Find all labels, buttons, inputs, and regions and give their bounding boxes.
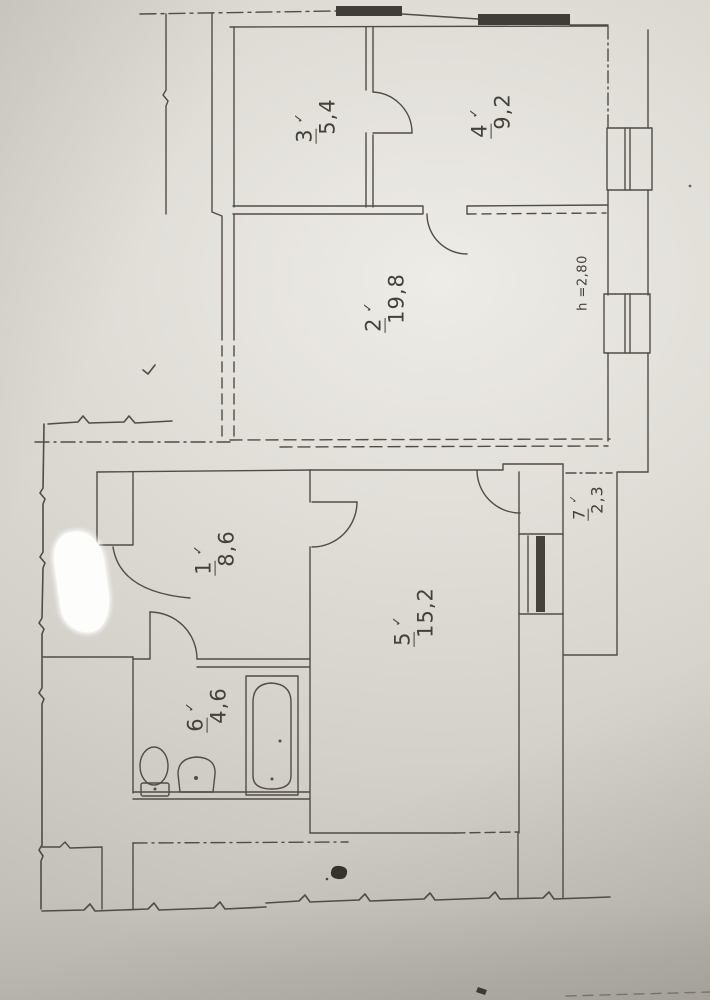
ink-blot [331, 866, 347, 879]
boundary-dashed-mid-1 [230, 439, 610, 440]
projection-bottom-left [42, 842, 102, 909]
speck-right [689, 185, 692, 188]
window-room2-mullion [625, 294, 630, 353]
wall-top-thick-bar-1 [336, 6, 402, 16]
bathtub-drain-2 [271, 778, 274, 781]
room-6-checkmark: ✓ [184, 702, 196, 712]
room-1-number-row: 1 ✓ [194, 530, 216, 575]
window-room5-room7-mullion [536, 536, 545, 612]
bathtub-inner [253, 683, 291, 789]
room-3-number-row: 3 ✓ [295, 98, 317, 143]
room-3-label: 3 ✓ 5,4 [295, 98, 340, 143]
tick-mark-left [143, 365, 155, 374]
room-5-number: 5 [393, 632, 415, 647]
room-6-number: 6 [186, 717, 208, 732]
door-room4-arc [373, 92, 412, 133]
ink-blot-dot [326, 878, 329, 881]
ink-dash-bottom [476, 987, 487, 995]
sink-drain [194, 776, 198, 780]
room-1-area: 8,6 [217, 530, 238, 575]
floorplan-photo: 1 ✓ 8,6 2 ✓ 19,8 3 ✓ 5,4 4 ✓ 9,2 5 ✓ 15,… [0, 0, 710, 1000]
wall-room34-divider-lower [366, 133, 373, 207]
room-1-checkmark: ✓ [192, 545, 204, 555]
room-2-label: 2 ✓ 19,8 [364, 273, 409, 333]
wall-top-dashdot [140, 11, 336, 14]
bathtub-drain-1 [279, 740, 282, 743]
room-7-checkmark: ✓ [570, 495, 580, 503]
wall-bottom-zigzag-left [42, 902, 266, 911]
window-room4-mullion [625, 128, 630, 190]
room-6-label: 6 ✓ 4,6 [186, 687, 231, 732]
room-6-number-row: 6 ✓ [186, 687, 208, 732]
interior-walls [97, 26, 608, 833]
room-1-number: 1 [194, 560, 216, 575]
duct-shaft [97, 472, 133, 545]
sink [178, 757, 215, 792]
room-7-number: 7 [572, 509, 589, 521]
wall-hall-room2-left [233, 206, 423, 214]
window-room2 [604, 294, 650, 353]
room-3-checkmark: ✓ [293, 113, 305, 123]
room-5-label: 5 ✓ 15,2 [393, 587, 438, 647]
room-4-label: 4 ✓ 9,2 [470, 93, 515, 138]
door-entry-arc [113, 547, 190, 598]
room-7-area: 2,3 [590, 485, 606, 520]
room-5-area: 15,2 [416, 587, 437, 647]
room-4-checkmark: ✓ [468, 108, 480, 118]
wall-room6-top [133, 659, 310, 667]
wall-room5-bottom-dashed [455, 832, 518, 833]
wall-left-zigzag-horizontal [48, 416, 172, 424]
wall-right-corner-step [617, 472, 648, 655]
room-2-number-row: 2 ✓ [364, 273, 386, 333]
windows [519, 128, 652, 614]
room-3-number: 3 [295, 128, 317, 143]
room-7-number-row: 7 ✓ [572, 485, 589, 520]
toilet-bowl [140, 747, 168, 785]
door-room2-arc [427, 214, 467, 254]
wall-top-connector [402, 14, 478, 19]
wall-hall-room2-right-dashed [467, 213, 606, 214]
boundary-dashed-bottom-edge [566, 992, 710, 996]
wall-left-outer-2 [212, 13, 222, 330]
boundary-dashed-mid-2 [280, 446, 608, 447]
room-4-number: 4 [470, 123, 492, 138]
boundary-dashdot-y843 [133, 842, 348, 843]
door-room6-arc [150, 612, 197, 659]
door-room5-room7-arc [477, 470, 520, 513]
room-2-number: 2 [364, 318, 386, 333]
room-4-area: 9,2 [493, 93, 514, 138]
wall-bottom-zigzag-right [266, 892, 610, 903]
room-5-checkmark: ✓ [391, 616, 403, 626]
room-7-label: 7 ✓ 2,3 [572, 485, 607, 520]
door-room5-arc [312, 502, 357, 547]
room-5-number-row: 5 ✓ [393, 587, 415, 647]
room-2-area: 19,8 [387, 273, 408, 333]
wall-room1-top [97, 470, 312, 472]
wall-top-thick-bar-2 [478, 14, 570, 25]
ceiling-height-label: h =2,80 [576, 255, 591, 311]
room-3-area: 5,4 [318, 98, 339, 143]
wall-room5-top [312, 464, 563, 470]
toilet-button [154, 788, 157, 791]
wall-left-exterior-vertical [39, 424, 45, 909]
room-2-checkmark: ✓ [362, 302, 374, 312]
wall-left-outer-1 [163, 14, 168, 214]
room-6-area: 4,6 [209, 687, 230, 732]
wall-rooms34-top [230, 26, 608, 27]
room-1-label: 1 ✓ 8,6 [194, 530, 239, 575]
wall-room34-divider-upper [366, 27, 373, 92]
room-4-number-row: 4 ✓ [470, 93, 492, 138]
